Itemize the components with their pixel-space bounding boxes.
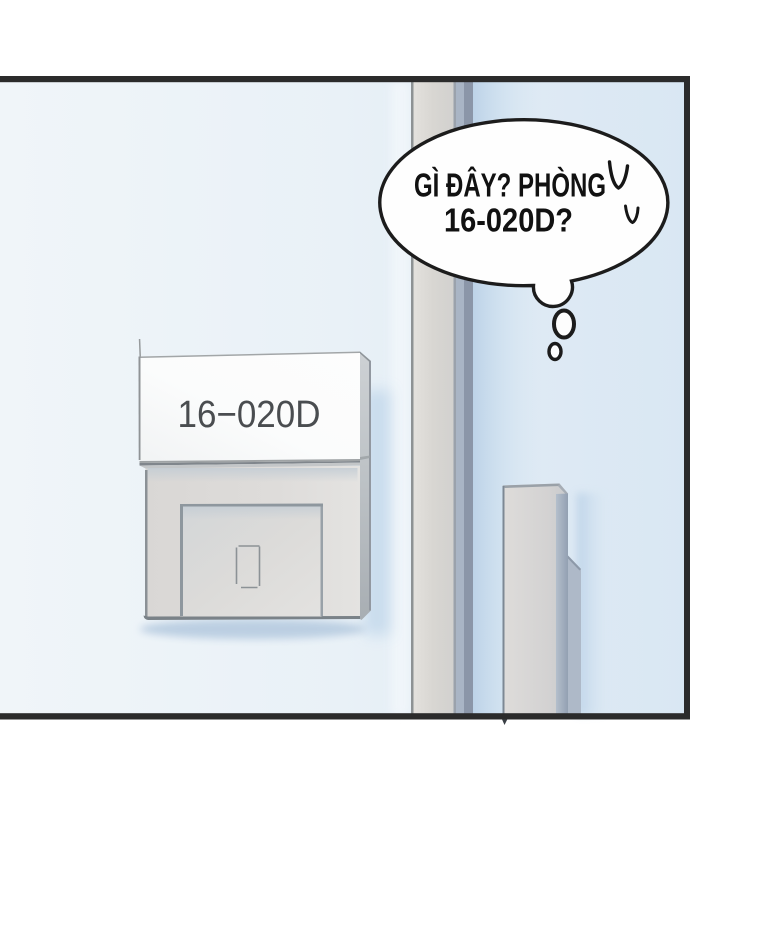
svg-text:GÌ ĐÂY? PHÒNG: GÌ ĐÂY? PHÒNG [414,167,606,204]
svg-text:16−020D: 16−020D [178,394,321,436]
svg-text:16-020D?: 16-020D? [444,202,573,239]
